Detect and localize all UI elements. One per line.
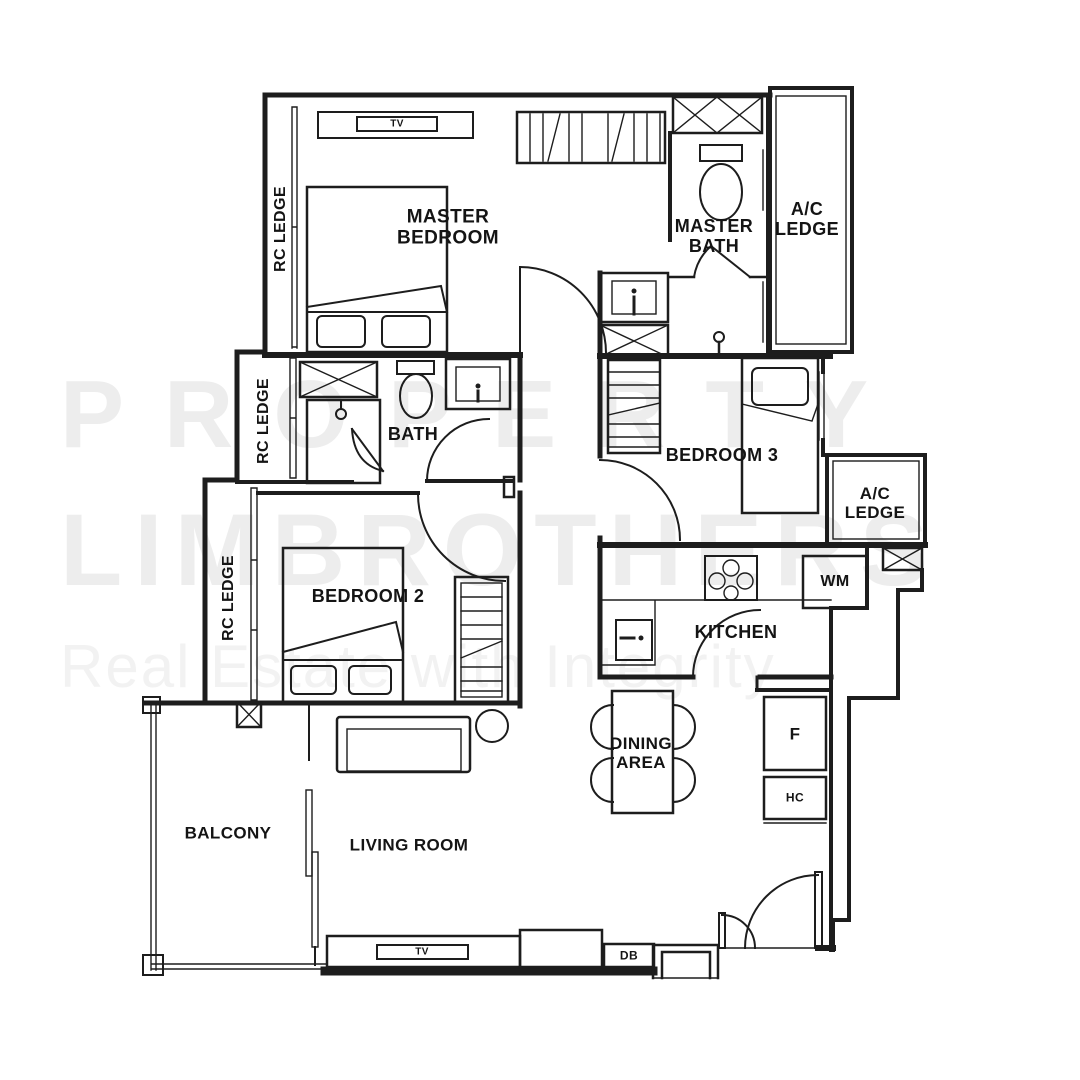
- dining-chair: [673, 758, 695, 802]
- label-line: MASTER: [675, 216, 753, 236]
- label-master-bath: MASTER BATH: [675, 216, 753, 256]
- structural-column: [237, 702, 261, 727]
- shower-box-icon: [300, 362, 377, 397]
- label-kitchen: KITCHEN: [695, 622, 778, 642]
- bedroom3-bed: [742, 358, 818, 513]
- bedroom2-bed: [283, 548, 403, 703]
- label-line: BATH: [675, 236, 753, 256]
- label-tv-master: TV: [390, 118, 404, 129]
- label-tv-living: TV: [415, 946, 429, 957]
- label-rc-ledge-lower: RC LEDGE: [220, 555, 238, 641]
- label-rc-ledge-top: RC LEDGE: [272, 186, 290, 272]
- label-bedroom-3: BEDROOM 3: [666, 445, 779, 465]
- label-master-bedroom: MASTER BEDROOM: [397, 207, 499, 250]
- floor-plan-canvas: PROPERTY LIMBROTHERS Real Estate with In…: [0, 0, 1080, 1080]
- label-ac-ledge-mid: A/C LEDGE: [845, 484, 906, 522]
- master-bedroom-door-arc: [520, 267, 606, 355]
- balcony-sliding-door: [306, 703, 318, 965]
- shower-tray-icon: [600, 325, 668, 357]
- entry-porch: [653, 945, 718, 978]
- label-line: LEDGE: [845, 503, 906, 522]
- label-wm: WM: [820, 573, 849, 591]
- balcony-corner-post: [143, 955, 163, 975]
- bedroom2-wardrobe: [455, 577, 508, 703]
- label-living-room: LIVING ROOM: [350, 835, 469, 854]
- shower-box-icon: [673, 97, 762, 133]
- label-ac-ledge-top: A/C LEDGE: [775, 199, 839, 239]
- label-line: MASTER: [397, 207, 499, 228]
- side-table: [476, 710, 508, 742]
- label-dining-area: DINING AREA: [610, 734, 672, 772]
- basin-icon: [446, 359, 510, 409]
- vanity-sink-icon: [600, 273, 668, 322]
- sofa: [337, 717, 470, 772]
- tv-console-living: [327, 930, 602, 967]
- label-line: A/C: [845, 484, 906, 503]
- label-line: A/C: [775, 199, 839, 219]
- label-hc: HC: [786, 791, 804, 804]
- entry-door-arcs: [719, 872, 822, 948]
- bedroom3-door-arc: [600, 460, 680, 540]
- shower-head-icon: [714, 332, 724, 353]
- shower-door-arc: [352, 429, 383, 471]
- kitchen-sink-icon: [616, 620, 652, 660]
- bedroom3-wardrobe: [608, 360, 660, 453]
- label-line: AREA: [610, 753, 672, 772]
- floor-plan-drawing: [0, 0, 1080, 1080]
- label-line: DINING: [610, 734, 672, 753]
- label-rc-ledge-mid: RC LEDGE: [255, 378, 273, 464]
- toilet-icon: [700, 145, 742, 220]
- hob-icon: [705, 556, 757, 600]
- entrance: [653, 872, 822, 978]
- label-line: BEDROOM: [397, 228, 499, 249]
- label-bedroom-2: BEDROOM 2: [312, 586, 425, 606]
- label-line: LEDGE: [775, 219, 839, 239]
- label-fridge: F: [790, 724, 801, 743]
- bedroom2-door-arc: [418, 494, 505, 581]
- label-db: DB: [620, 949, 638, 962]
- label-balcony: BALCONY: [185, 823, 272, 842]
- label-bath: BATH: [388, 424, 438, 444]
- toilet-icon: [397, 361, 434, 418]
- master-wardrobe: [517, 112, 665, 163]
- dining-chair: [673, 705, 695, 749]
- kitchen-door-arc: [693, 610, 760, 677]
- service-ledge-box: [883, 548, 922, 570]
- bath-fixtures: [300, 359, 510, 483]
- shower-stall: [307, 400, 380, 483]
